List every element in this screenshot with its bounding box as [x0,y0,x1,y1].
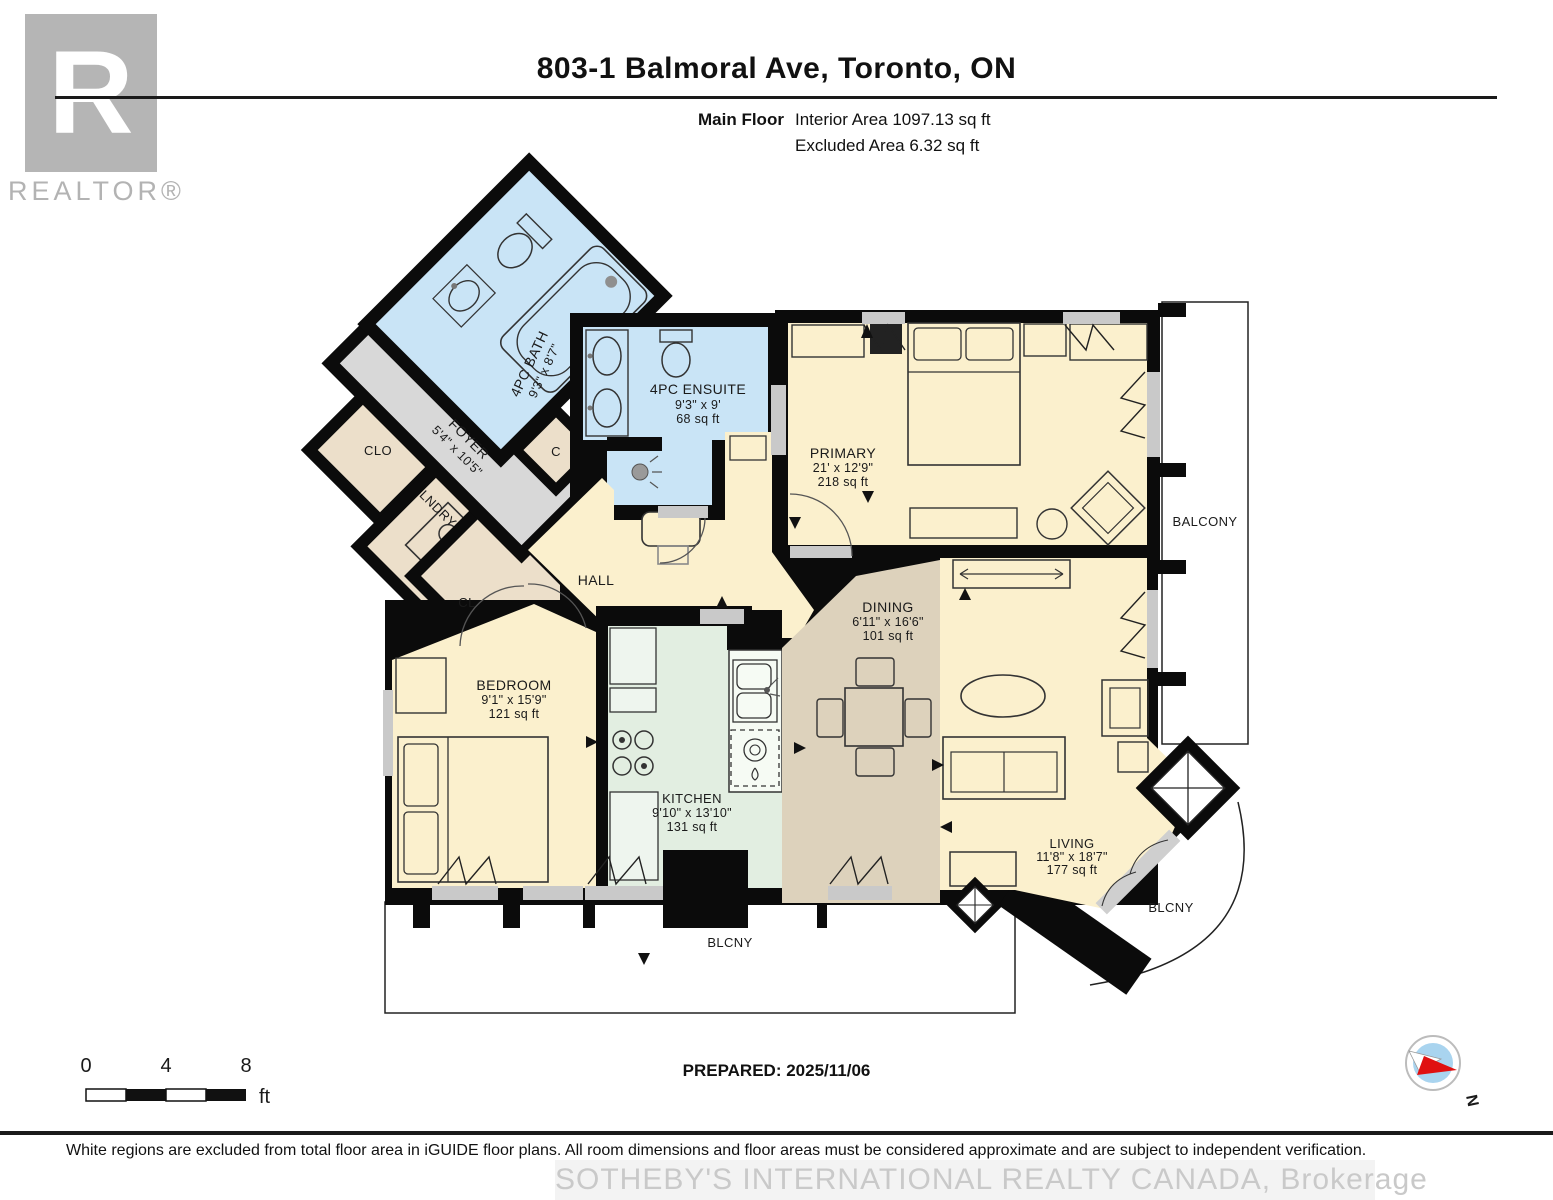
svg-text:9'1" x 15'9": 9'1" x 15'9" [481,693,546,707]
dining-label: DINING 6'11" x 16'6" 101 sq ft [852,599,924,643]
primary-room [788,323,1147,545]
footer-divider [0,1131,1553,1135]
svg-text:9'3" x 9': 9'3" x 9' [675,398,721,412]
svg-text:4PC ENSUITE: 4PC ENSUITE [650,381,746,397]
cl-label: CL [458,595,475,610]
svg-text:101 sq ft: 101 sq ft [863,629,914,643]
prepared-date: PREPARED: 2025/11/06 [0,1061,1553,1081]
kitchen-island [727,610,782,792]
svg-text:218 sq ft: 218 sq ft [818,475,869,489]
svg-text:21' x 12'9": 21' x 12'9" [813,461,873,475]
hall-label: HALL [578,572,615,588]
wall [596,626,608,888]
svg-text:177 sq ft: 177 sq ft [1047,863,1098,877]
svg-text:KITCHEN: KITCHEN [662,791,722,806]
svg-text:LIVING: LIVING [1049,836,1094,851]
blcny-bottom-label: BLCNY [707,935,752,950]
balcony-right-label: BALCONY [1173,514,1238,529]
svg-text:121 sq ft: 121 sq ft [489,707,540,721]
primary-bed-icon [908,323,1020,465]
svg-text:ft: ft [259,1086,271,1108]
disclaimer-text: White regions are excluded from total fl… [66,1142,1366,1160]
svg-text:6'11" x 16'6": 6'11" x 16'6" [852,615,924,629]
blcny-corner-label: BLCNY [1148,900,1193,915]
kitchen-room [608,610,782,888]
compass-north-label: N [1462,1093,1481,1108]
c-label: C [551,444,561,459]
counter-icon [610,628,656,684]
svg-text:9'10" x 13'10": 9'10" x 13'10" [652,806,732,820]
clo-label: CLO [364,443,392,458]
counter-icon [610,688,656,712]
svg-text:11'8" x 18'7": 11'8" x 18'7" [1036,850,1108,864]
svg-text:DINING: DINING [862,599,913,615]
brokerage-watermark: SOTHEBY'S INTERNATIONAL REALTY CANADA, B… [555,1160,1375,1200]
svg-text:PRIMARY: PRIMARY [810,445,877,461]
svg-text:131 sq ft: 131 sq ft [667,820,718,834]
fridge-icon [610,792,658,880]
floor-plan-drawing: 4PC BATH 9'3" x 8'7" FOYER 5'4" x 10'5" … [0,0,1553,1200]
svg-text:68 sq ft: 68 sq ft [676,412,720,426]
bedroom-bed-icon [398,737,548,882]
floor-plan-page: R 803-1 Balmoral Ave, Toronto, ON REALTO… [0,0,1553,1200]
primary-label: PRIMARY 21' x 12'9" 218 sq ft [810,445,877,489]
svg-text:BEDROOM: BEDROOM [476,677,551,693]
